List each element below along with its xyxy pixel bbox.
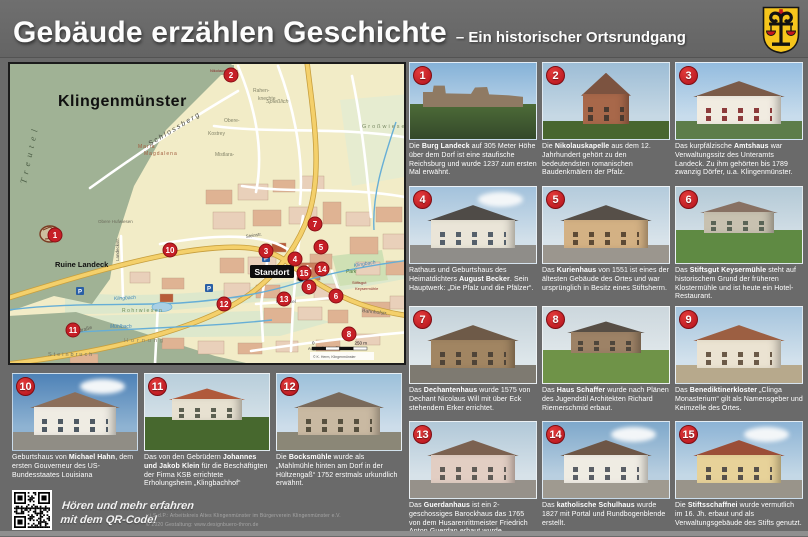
card-13: 13Das Guerdanhaus ist ein 2-geschossiges… bbox=[409, 421, 537, 537]
card-11: 11Das von den Gebrüdern Johannes und Jak… bbox=[144, 373, 270, 489]
card-number-badge: 3 bbox=[679, 66, 698, 85]
map-credit: © K. Herm, Klingenmünster bbox=[313, 355, 356, 359]
card-number-badge: 11 bbox=[148, 377, 167, 396]
photo-roof bbox=[294, 392, 384, 408]
photo-wall bbox=[431, 340, 514, 368]
photo-roof bbox=[427, 440, 518, 456]
map-marker-14: 14 bbox=[315, 262, 329, 276]
card-grid-right: 1Die Burg Landeck auf 305 Meter Höhe übe… bbox=[409, 62, 803, 537]
card-14: 14Das katholische Schulhaus wurde 1827 m… bbox=[542, 421, 670, 537]
card-photo-4: 4 bbox=[409, 186, 537, 264]
card-number-badge: 12 bbox=[280, 377, 299, 396]
photo-roof bbox=[427, 325, 518, 341]
photo-windows bbox=[578, 347, 634, 351]
svg-text:13: 13 bbox=[280, 295, 289, 304]
photo-building bbox=[564, 208, 647, 248]
card-2: 2Die Nikolauskapelle aus dem 12. Jahrhun… bbox=[542, 62, 670, 186]
svg-text:12: 12 bbox=[220, 300, 229, 309]
photo-ground bbox=[543, 350, 669, 383]
photo-windows bbox=[706, 116, 773, 121]
photo-ground bbox=[410, 104, 536, 139]
card-grid-bottom: 10Geburtshaus von Michael Hahn, dem erst… bbox=[12, 373, 408, 489]
card-number-badge: 4 bbox=[413, 190, 432, 209]
photo-wall bbox=[298, 407, 380, 435]
photo-windows bbox=[179, 414, 235, 418]
photo-windows bbox=[706, 352, 773, 357]
map-marker-4: 4 bbox=[288, 252, 302, 266]
map-marker-12: 12 bbox=[217, 297, 231, 311]
map-label: Park bbox=[346, 269, 357, 275]
card-photo-11: 11 bbox=[144, 373, 270, 451]
card-photo-3: 3 bbox=[675, 62, 803, 140]
map-label: knechte bbox=[258, 96, 276, 102]
map-label: Magdalena bbox=[144, 151, 178, 157]
photo-building bbox=[564, 443, 647, 483]
card-number-badge: 14 bbox=[546, 425, 565, 444]
photo-windows bbox=[711, 221, 767, 225]
card-number-badge: 15 bbox=[679, 425, 698, 444]
photo-windows bbox=[711, 227, 767, 231]
svg-text:3: 3 bbox=[264, 247, 269, 256]
map-marker-2: 2 bbox=[224, 68, 238, 82]
header-bar: Gebäude erzählen Geschichte– Ein histori… bbox=[0, 0, 808, 58]
photo-roof bbox=[700, 201, 778, 213]
imprint-line1: v.i.S.d.P.: Arbeitskreis Altes Klingenmü… bbox=[146, 512, 341, 521]
card-8: 8Das Haus Schaffer wurde nach Plänen des… bbox=[542, 306, 670, 421]
photo-windows bbox=[440, 352, 507, 357]
photo-windows bbox=[573, 475, 640, 480]
photo-wall bbox=[697, 340, 780, 368]
coat-of-arms-icon bbox=[762, 6, 800, 54]
card-caption: Das von den Gebrüdern Johannes und Jakob… bbox=[144, 454, 270, 489]
svg-text:15: 15 bbox=[300, 269, 309, 278]
map-canvas: KlingenmünsterTreutelS c h l o s s b e r… bbox=[10, 64, 404, 363]
map-label: Großwiesen bbox=[362, 124, 404, 130]
card-caption: Das Haus Schaffer wurde nach Plänen des … bbox=[542, 387, 670, 413]
photo-building bbox=[571, 324, 642, 353]
photo-building bbox=[583, 81, 628, 124]
map-marker-8: 8 bbox=[342, 327, 356, 341]
card-caption: Das Benediktinerkloster „Clinga Monaster… bbox=[675, 387, 803, 413]
standort-label: Standort bbox=[255, 267, 290, 277]
svg-text:7: 7 bbox=[313, 220, 318, 229]
map-label: Mühlbach bbox=[110, 324, 132, 330]
card-10: 10Geburtshaus von Michael Hahn, dem erst… bbox=[12, 373, 138, 489]
cloud bbox=[744, 427, 789, 442]
photo-building bbox=[431, 328, 514, 368]
map-marker-11: 11 bbox=[66, 323, 80, 337]
photo-wall bbox=[564, 455, 647, 483]
photo-roof bbox=[693, 325, 784, 341]
photo-roof bbox=[693, 81, 784, 97]
photo-windows bbox=[42, 419, 107, 424]
photo-building bbox=[423, 84, 524, 107]
card-photo-10: 10 bbox=[12, 373, 138, 451]
photo-roof bbox=[581, 73, 631, 96]
map-label: Maria bbox=[138, 144, 156, 150]
photo-wall bbox=[697, 96, 780, 124]
photo-wall bbox=[431, 455, 514, 483]
map-marker-3: 3 bbox=[259, 244, 273, 258]
photo-windows bbox=[306, 419, 371, 424]
photo-windows bbox=[440, 240, 507, 245]
card-number-badge: 1 bbox=[413, 66, 432, 85]
svg-text:6: 6 bbox=[334, 292, 339, 301]
card-caption: Rathaus und Geburtshaus des Heimatdichte… bbox=[409, 267, 537, 293]
card-caption: Die Nikolauskapelle aus dem 12. Jahrhund… bbox=[542, 143, 670, 178]
photo-windows bbox=[573, 240, 640, 245]
map-label: Landeckstr. bbox=[115, 238, 120, 261]
card-photo-14: 14 bbox=[542, 421, 670, 499]
photo-windows bbox=[42, 427, 107, 432]
card-4: 4Rathaus und Geburtshaus des Heimatdicht… bbox=[409, 186, 537, 306]
card-3: 3Das kurpfälzische Amtshaus war Verwaltu… bbox=[675, 62, 803, 186]
card-number-badge: 13 bbox=[413, 425, 432, 444]
svg-text:2: 2 bbox=[229, 71, 234, 80]
card-caption: Das Dechantenhaus wurde 1575 von Dechant… bbox=[409, 387, 537, 413]
svg-text:P: P bbox=[78, 289, 82, 295]
svg-text:4: 4 bbox=[293, 255, 298, 264]
svg-text:P: P bbox=[207, 286, 211, 292]
photo-wall bbox=[172, 399, 241, 419]
photo-building bbox=[431, 443, 514, 483]
card-photo-5: 5 bbox=[542, 186, 670, 264]
card-photo-9: 9 bbox=[675, 306, 803, 384]
card-caption: Die Bocksmühle wurde als „Mahlmühle hint… bbox=[276, 454, 402, 489]
photo-wall bbox=[583, 94, 628, 124]
map-label: Rohrwiesen bbox=[122, 308, 163, 314]
photo-windows bbox=[706, 475, 773, 480]
card-9: 9Das Benediktinerkloster „Clinga Monaste… bbox=[675, 306, 803, 421]
map-marker-6: 6 bbox=[329, 289, 343, 303]
photo-windows bbox=[588, 115, 624, 120]
svg-text:250 m: 250 m bbox=[354, 341, 367, 346]
map-marker-5: 5 bbox=[314, 240, 328, 254]
card-photo-2: 2 bbox=[542, 62, 670, 140]
photo-roof bbox=[427, 205, 518, 221]
card-photo-7: 7 bbox=[409, 306, 537, 384]
map-marker-9: 9 bbox=[302, 280, 316, 294]
card-number-badge: 5 bbox=[546, 190, 565, 209]
card-caption: Das Stiftsgut Keysermühle steht auf hist… bbox=[675, 267, 803, 302]
svg-text:14: 14 bbox=[318, 265, 327, 274]
cloud bbox=[478, 192, 523, 207]
card-5: 5Das Kurienhaus von 1551 ist eines der ä… bbox=[542, 186, 670, 306]
photo-building bbox=[172, 391, 241, 420]
map-marker-15: 15 bbox=[297, 266, 311, 280]
photo-building bbox=[704, 204, 775, 233]
card-caption: Das Kurienhaus von 1551 ist eines der äl… bbox=[542, 267, 670, 293]
photo-windows bbox=[573, 467, 640, 472]
photo-windows bbox=[573, 232, 640, 237]
photo-windows bbox=[306, 427, 371, 432]
cloud bbox=[80, 379, 125, 394]
photo-wall bbox=[423, 84, 524, 107]
photo-roof bbox=[693, 440, 784, 456]
map-label: Stiftsgut bbox=[352, 280, 367, 285]
map-label: Kostrey bbox=[208, 131, 225, 137]
card-number-badge: 8 bbox=[546, 310, 565, 329]
qr-code bbox=[12, 490, 52, 530]
photo-roof bbox=[567, 321, 645, 333]
map-marker-7: 7 bbox=[308, 217, 322, 231]
photo-windows bbox=[588, 107, 624, 112]
card-photo-13: 13 bbox=[409, 421, 537, 499]
poster: { "header": { "title": "Gebäude erzählen… bbox=[0, 0, 808, 536]
photo-windows bbox=[179, 408, 235, 412]
town-map: KlingenmünsterTreutelS c h l o s s b e r… bbox=[8, 62, 406, 365]
svg-text:8: 8 bbox=[347, 330, 352, 339]
card-caption: Geburtshaus von Michael Hahn, dem ersten… bbox=[12, 454, 138, 480]
photo-windows bbox=[440, 360, 507, 365]
photo-roof bbox=[560, 205, 651, 221]
map-marker-13: 13 bbox=[277, 292, 291, 306]
header-titles: Gebäude erzählen Geschichte– Ein histori… bbox=[13, 16, 686, 50]
map-label: Obere Hufwiesen bbox=[98, 219, 133, 224]
map-label: Mistlara- bbox=[215, 152, 235, 158]
map-marker-10: 10 bbox=[163, 243, 177, 257]
photo-wall bbox=[571, 332, 642, 352]
card-1: 1Die Burg Landeck auf 305 Meter Höhe übe… bbox=[409, 62, 537, 186]
page-title: Gebäude erzählen Geschichte bbox=[13, 16, 447, 49]
card-number-badge: 10 bbox=[16, 377, 35, 396]
photo-ground bbox=[676, 230, 802, 263]
svg-text:11: 11 bbox=[69, 326, 78, 335]
photo-windows bbox=[440, 467, 507, 472]
card-number-badge: 6 bbox=[679, 190, 698, 209]
card-caption: Die Stiftsschaffnei wurde vermutlich im … bbox=[675, 502, 803, 528]
map-label: Ruine Landeck bbox=[55, 260, 109, 269]
card-photo-1: 1 bbox=[409, 62, 537, 140]
map-label: Rahen- bbox=[253, 88, 270, 94]
photo-wall bbox=[34, 407, 116, 435]
card-photo-6: 6 bbox=[675, 186, 803, 264]
svg-text:10: 10 bbox=[166, 246, 175, 255]
map-label: Hornung bbox=[124, 338, 166, 344]
photo-wall bbox=[697, 455, 780, 483]
photo-windows bbox=[706, 467, 773, 472]
card-number-badge: 2 bbox=[546, 66, 565, 85]
photo-windows bbox=[706, 108, 773, 113]
card-caption: Das kurpfälzische Amtshaus war Verwaltun… bbox=[675, 143, 803, 178]
card-photo-8: 8 bbox=[542, 306, 670, 384]
poster-bottom-edge bbox=[0, 531, 808, 536]
map-label: Klingenmünster bbox=[58, 93, 187, 110]
photo-building bbox=[431, 208, 514, 248]
cloud bbox=[611, 427, 656, 442]
photo-roof bbox=[30, 392, 120, 408]
card-number-badge: 7 bbox=[413, 310, 432, 329]
imprint-line2: © 2020 Gestaltung: www.designbuero-thron… bbox=[146, 521, 341, 530]
card-6: 6Das Stiftsgut Keysermühle steht auf his… bbox=[675, 186, 803, 306]
photo-building bbox=[697, 328, 780, 368]
page-subtitle: – Ein historischer Ortsrundgang bbox=[456, 29, 686, 46]
photo-building bbox=[697, 443, 780, 483]
card-12: 12Die Bocksmühle wurde als „Mahlmühle hi… bbox=[276, 373, 402, 489]
photo-building bbox=[298, 395, 380, 435]
photo-wall bbox=[431, 220, 514, 248]
card-photo-12: 12 bbox=[276, 373, 402, 451]
photo-roof bbox=[169, 388, 245, 400]
card-15: 15Die Stiftsschaffnei wurde vermutlich i… bbox=[675, 421, 803, 537]
photo-wall bbox=[564, 220, 647, 248]
card-photo-15: 15 bbox=[675, 421, 803, 499]
map-label: Keysermühle bbox=[355, 286, 379, 291]
svg-text:9: 9 bbox=[307, 283, 312, 292]
map-label: Obere- bbox=[224, 118, 240, 124]
photo-roof bbox=[560, 440, 651, 456]
imprint: v.i.S.d.P.: Arbeitskreis Altes Klingenmü… bbox=[146, 512, 341, 529]
photo-windows bbox=[440, 475, 507, 480]
card-caption: Die Burg Landeck auf 305 Meter Höhe über… bbox=[409, 143, 537, 178]
card-caption: Das katholische Schulhaus wurde 1827 mit… bbox=[542, 502, 670, 528]
map-label: Klingbach bbox=[114, 295, 136, 302]
photo-building bbox=[34, 395, 116, 435]
photo-ground bbox=[145, 417, 269, 450]
photo-windows bbox=[706, 360, 773, 365]
svg-text:1: 1 bbox=[53, 231, 58, 240]
photo-windows bbox=[578, 341, 634, 345]
map-label: Steinbruch bbox=[48, 352, 94, 358]
card-7: 7Das Dechantenhaus wurde 1575 von Dechan… bbox=[409, 306, 537, 421]
photo-windows bbox=[440, 232, 507, 237]
map-marker-1: 1 bbox=[48, 228, 62, 242]
photo-wall bbox=[704, 212, 775, 232]
svg-text:5: 5 bbox=[319, 243, 324, 252]
photo-building bbox=[697, 84, 780, 124]
card-number-badge: 9 bbox=[679, 310, 698, 329]
